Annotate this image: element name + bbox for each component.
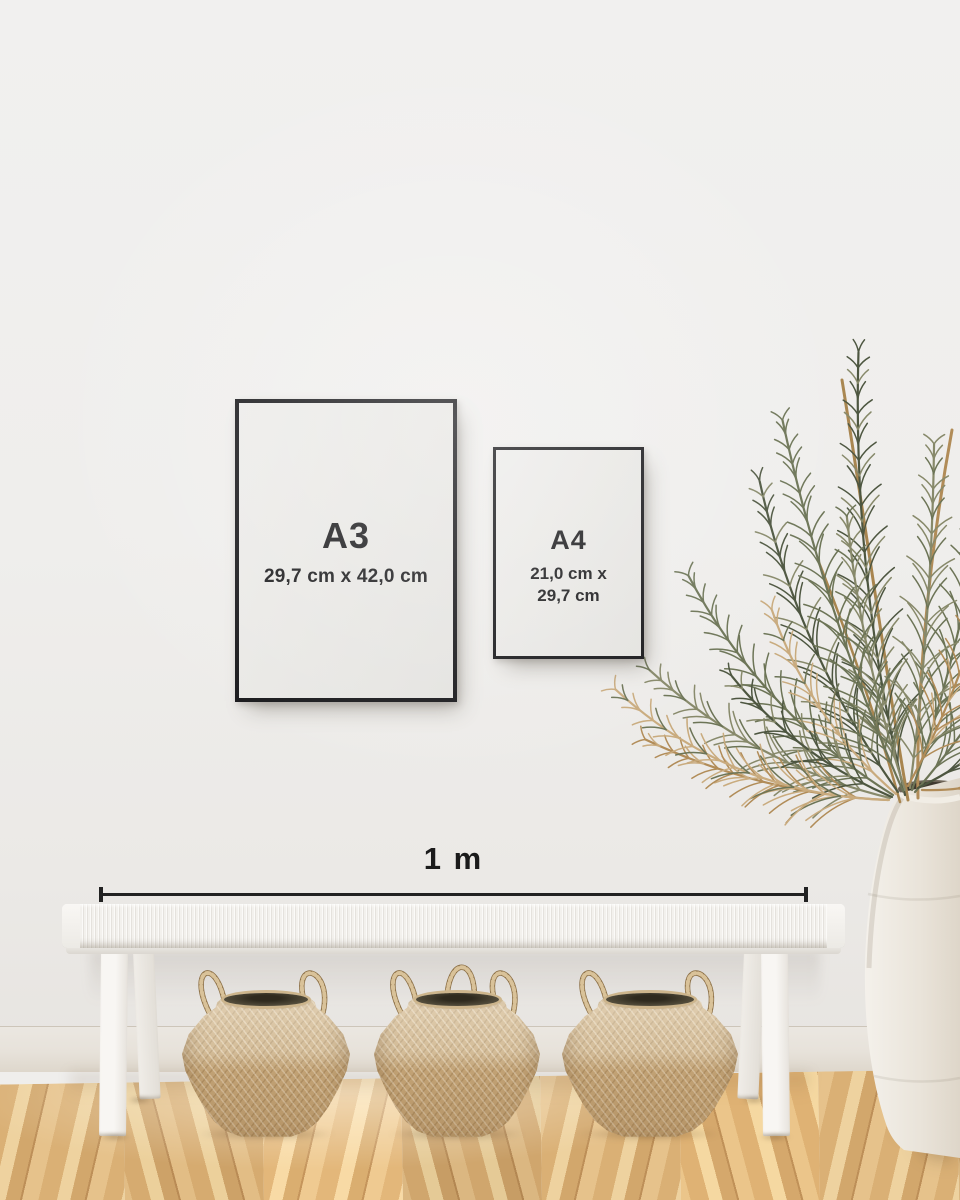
- ruler-left-tick: [99, 887, 103, 902]
- basket-opening: [224, 993, 308, 1006]
- a4-size-label: A4: [550, 525, 587, 556]
- seagrass-basket: [374, 950, 540, 1138]
- a3-frame: A3 29,7 cm x 42,0 cm: [235, 399, 457, 702]
- a4-dimensions-line2: 29,7 cm: [530, 585, 607, 607]
- measurement-label: 1 m: [100, 841, 807, 877]
- bench-seat-right-edge: [827, 904, 845, 948]
- room-scene: A3 29,7 cm x 42,0 cm A4 21,0 cm x 29,7 c…: [0, 0, 960, 1200]
- a3-dimensions-text: 29,7 cm x 42,0 cm: [264, 566, 428, 588]
- basket-body: [562, 998, 738, 1138]
- a4-frame: A4 21,0 cm x 29,7 cm: [493, 447, 644, 659]
- bench-front-left-leg: [99, 952, 128, 1136]
- a4-poster-paper: A4 21,0 cm x 29,7 cm: [496, 450, 641, 656]
- ruler-bar: [100, 893, 807, 896]
- a3-poster-paper: A3 29,7 cm x 42,0 cm: [239, 403, 453, 698]
- seagrass-basket: [182, 960, 350, 1138]
- basket-body: [182, 998, 350, 1138]
- leg-shadow: [752, 1132, 798, 1142]
- basket-body: [374, 998, 540, 1138]
- ceramic-vase: [858, 776, 960, 1156]
- basket-opening: [416, 993, 499, 1006]
- bench-front-right-leg: [761, 952, 790, 1136]
- leg-shadow: [122, 1095, 158, 1105]
- seagrass-basket: [562, 958, 738, 1138]
- basket-opening: [606, 993, 694, 1006]
- ruler-right-tick: [804, 887, 808, 902]
- bench-seat-woven-top: [62, 904, 845, 948]
- measurement-ruler: 1 m: [100, 841, 807, 903]
- a4-dimensions-line1: 21,0 cm x: [530, 563, 607, 585]
- leg-shadow: [92, 1132, 138, 1142]
- bench-seat-left-edge: [62, 904, 80, 948]
- a3-size-label: A3: [322, 515, 370, 557]
- ruler-line: [100, 887, 807, 902]
- a4-dimensions-text: 21,0 cm x 29,7 cm: [530, 563, 607, 608]
